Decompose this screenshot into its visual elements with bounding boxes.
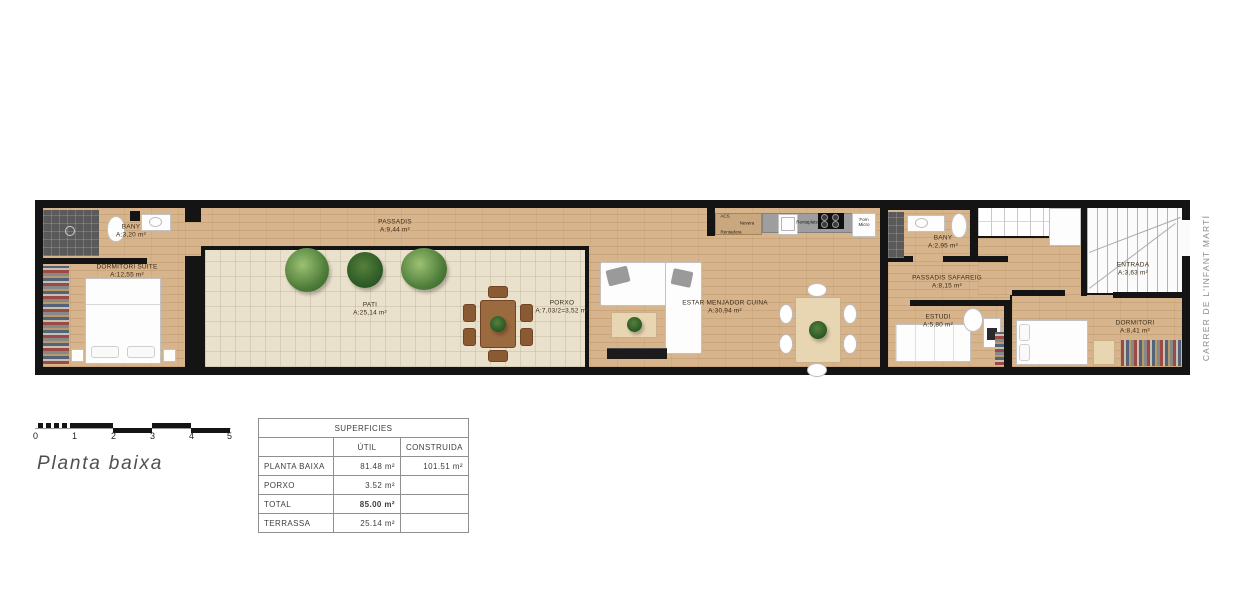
dining-chair-l1	[779, 304, 793, 324]
dining-chair-bottom	[807, 363, 827, 377]
room-area: A:12,55 m²	[96, 272, 157, 280]
scale-tick: 0	[33, 431, 38, 441]
column-header-construida: CONSTRUIDA	[401, 438, 469, 457]
room-name: BANY	[928, 235, 958, 243]
wall-living-right-top	[880, 208, 888, 262]
porxo-chair-l2	[463, 328, 476, 346]
porxo-chair-bottom	[488, 350, 508, 362]
tv-unit	[607, 348, 667, 359]
porxo-table-plant	[490, 316, 506, 332]
kitchen-label-acs: ACS	[720, 213, 729, 218]
wall-living-right-bottom	[880, 295, 888, 367]
room-label-estar: ESTAR MENJADOR CUINA A:30,94 m²	[682, 300, 768, 317]
kitchen-label-rentaplats: Rentaplats	[796, 219, 818, 224]
scale-tick: 5	[227, 431, 232, 441]
table-row: PORXO 3.52 m²	[259, 476, 469, 495]
pati-plant-2	[347, 252, 383, 288]
room-name: DORMITORI	[1116, 320, 1155, 328]
floor-plan: ACS Nevera Rentadora Rentaplats Forn Mic…	[35, 200, 1190, 375]
scale-tick: 4	[189, 431, 194, 441]
bany2-shower	[888, 212, 904, 258]
scale-bar-dash	[38, 423, 43, 428]
room-label-dormitori-suite: DORMITORI SUITE A:12,55 m²	[96, 264, 157, 281]
scale-bar-segment	[191, 428, 230, 433]
scale-bar-segment	[113, 428, 152, 433]
room-label-passadis-safareig: PASSADIS SAFAREIG A:8,15 m²	[912, 275, 982, 292]
row-label: PORXO	[259, 476, 334, 495]
suite-nightstand-1	[71, 349, 84, 362]
street-door-gap	[1182, 220, 1190, 256]
suite-pillow-2	[127, 346, 155, 358]
wall-suite-divider	[185, 256, 201, 375]
bany2-sink-basin	[915, 218, 928, 228]
suite-pillow-1	[91, 346, 119, 358]
porxo-chair-r2	[520, 328, 533, 346]
scale-tick: 3	[150, 431, 155, 441]
wall-bany2-right	[970, 208, 978, 258]
row-util-value: 3.52 m²	[334, 476, 401, 495]
room-label-estudi: ESTUDI A:5,80 m²	[923, 314, 953, 331]
scale-bar-dash	[62, 423, 67, 428]
room-label-porxo: PORXO A:7,03/2=3,52 m²	[535, 300, 588, 317]
table-cell-empty	[259, 438, 334, 457]
scale-tick: 1	[72, 431, 77, 441]
coffee-table-plant	[627, 317, 642, 332]
room-area: A:9,44 m²	[378, 227, 412, 235]
suite-wardrobe	[43, 266, 69, 364]
shower-drain-icon	[65, 226, 75, 236]
kitchen-label-forn-micro: Forn Micro	[854, 217, 874, 227]
table-row: ÚTIL CONSTRUIDA	[259, 438, 469, 457]
room-area: A:5,80 m²	[923, 322, 953, 330]
room-area: A:7,03/2=3,52 m²	[535, 308, 588, 316]
dormitori-desk	[1093, 340, 1115, 365]
room-name: PATI	[353, 302, 387, 310]
dining-chair-l2	[779, 334, 793, 354]
burner-icon	[832, 214, 839, 221]
room-name: ESTUDI	[923, 314, 953, 322]
table-row: PLANTA BAIXA 81.48 m² 101.51 m²	[259, 457, 469, 476]
cooktop-icon	[818, 213, 844, 229]
suite-bed-fold	[86, 304, 160, 305]
wall-estudi-dormitori	[1004, 300, 1012, 367]
areas-table: SUPERFICIES ÚTIL CONSTRUIDA PLANTA BAIXA…	[258, 418, 469, 533]
pati-plant-3	[401, 248, 447, 290]
dormitori-pillow-2	[1019, 344, 1030, 361]
dormitori-wardrobe	[1121, 340, 1181, 366]
room-name: ESTAR MENJADOR CUINA	[682, 300, 768, 308]
porxo-chair-l1	[463, 304, 476, 322]
wall-entrada-bottom	[1113, 292, 1183, 298]
dishwasher-door	[781, 217, 795, 231]
room-area: A:30,94 m²	[682, 308, 768, 316]
table-row: SUPERFICIES	[259, 419, 469, 438]
room-name: DORMITORI SUITE	[96, 264, 157, 272]
room-name: ENTRADA	[1117, 262, 1149, 270]
dining-table-plant	[809, 321, 827, 339]
dining-chair-top	[807, 283, 827, 297]
scale-bar: 0 1 2 3 4 5	[35, 419, 231, 441]
room-area: A:8,15 m²	[912, 283, 982, 291]
scale-bar-dash	[54, 423, 59, 428]
kitchen-label-rentadora: Rentadora	[720, 229, 741, 234]
wall-kitchen-notch	[707, 208, 715, 236]
wall-suite-divider-top	[185, 208, 201, 222]
room-name: PASSADIS	[378, 219, 412, 227]
dormitori-pillow-1	[1019, 324, 1030, 341]
room-area: A:3,63 m²	[1117, 270, 1149, 278]
row-construida-value: 101.51 m²	[401, 457, 469, 476]
row-construida-value	[401, 495, 469, 514]
row-util-value: 81.48 m²	[334, 457, 401, 476]
scale-tick: 2	[111, 431, 116, 441]
row-util-value: 25.14 m²	[334, 514, 401, 533]
scale-bar-segment	[152, 423, 191, 428]
column-header-util: ÚTIL	[334, 438, 401, 457]
wall-estudi-top	[910, 300, 1010, 306]
room-label-dormitori: DORMITORI A:8,41 m²	[1116, 320, 1155, 337]
porxo-chair-top	[488, 286, 508, 298]
plan-title: Planta baixa	[37, 453, 163, 475]
suite-sink-basin	[149, 217, 162, 227]
scale-bar-dash	[46, 423, 51, 428]
row-label: TOTAL	[259, 495, 334, 514]
room-label-bany-suite: BANY A:3,20 m²	[116, 224, 146, 241]
table-header: SUPERFICIES	[259, 419, 469, 438]
suite-nightstand-2	[163, 349, 176, 362]
estudi-chair	[963, 308, 983, 332]
dining-chair-r2	[843, 334, 857, 354]
room-area: A:8,41 m²	[1116, 328, 1155, 336]
room-label-passadis: PASSADIS A:9,44 m²	[378, 219, 412, 236]
scale-bar-segment	[74, 423, 113, 428]
pati-plant-1	[285, 248, 329, 292]
row-construida-value	[401, 476, 469, 495]
duct-box	[130, 211, 140, 221]
room-name: BANY	[116, 224, 146, 232]
room-label-pati: PATI A:25,14 m²	[353, 302, 387, 319]
burner-icon	[832, 221, 839, 228]
porxo-chair-r1	[520, 304, 533, 322]
room-area: A:3,20 m²	[116, 232, 146, 240]
burner-icon	[821, 214, 828, 221]
table-row: TOTAL 85.00 m²	[259, 495, 469, 514]
row-construida-value	[401, 514, 469, 533]
estudi-shelf	[995, 332, 1004, 365]
page: ACS Nevera Rentadora Rentaplats Forn Mic…	[0, 0, 1245, 593]
row-util-value: 85.00 m²	[334, 495, 401, 514]
dining-chair-r1	[843, 304, 857, 324]
room-name: PORXO	[535, 300, 588, 308]
kitchen-label-nevera: Nevera	[740, 220, 755, 225]
wall-dormitori-top	[1012, 290, 1065, 296]
room-area: A:2,95 m²	[928, 243, 958, 251]
wall-armaris-right	[1081, 208, 1087, 296]
street-label: CARRER DE L'INFANT MARTÍ	[1201, 202, 1211, 374]
corridor-floor-2	[978, 238, 1085, 295]
room-label-bany2: BANY A:2,95 m²	[928, 235, 958, 252]
table-row: TERRASSA 25.14 m²	[259, 514, 469, 533]
tall-cabinet	[1049, 208, 1081, 246]
room-label-entrada: ENTRADA A:3,63 m²	[1117, 262, 1149, 279]
row-label: TERRASSA	[259, 514, 334, 533]
burner-icon	[821, 221, 828, 228]
room-name: PASSADIS SAFAREIG	[912, 275, 982, 283]
room-area: A:25,14 m²	[353, 310, 387, 318]
row-label: PLANTA BAIXA	[259, 457, 334, 476]
